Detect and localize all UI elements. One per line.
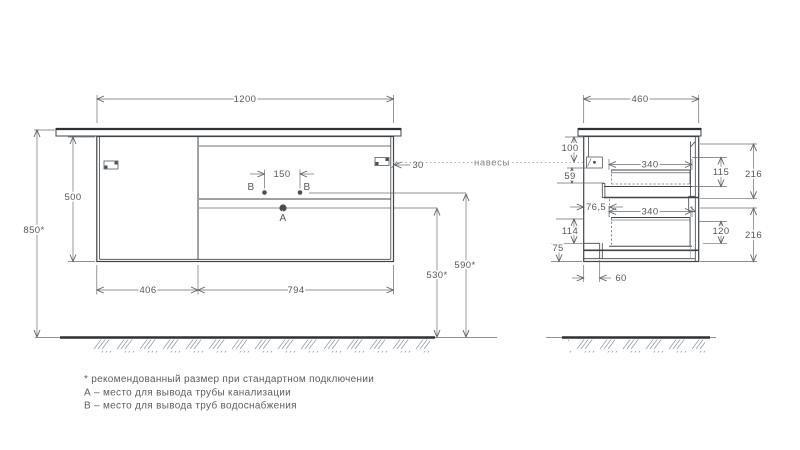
dim-bottom-widths: 406 794 xyxy=(97,265,394,296)
dim-850-label: 850* xyxy=(23,225,44,236)
dim-width: 1200 xyxy=(97,94,394,123)
dim-794-label: 794 xyxy=(287,285,304,296)
dim-100-label: 100 xyxy=(561,143,578,154)
water-supply-point-left xyxy=(262,190,267,195)
dim-lower-inner-height: 120 xyxy=(698,222,730,244)
drain-point xyxy=(279,204,286,211)
point-b-left-label: В xyxy=(247,182,254,193)
dim-upper-drawer-depth: 340 xyxy=(609,159,692,171)
side-drawer-bracket xyxy=(602,184,605,198)
dim-1200-label: 1200 xyxy=(234,94,257,105)
dim-outlet-heights: 590* 530* xyxy=(309,193,476,337)
side-lower-drawer xyxy=(584,218,699,251)
floor-hatching-side xyxy=(568,340,705,353)
footnote-point-a: А – место для вывода трубы канализации xyxy=(84,387,291,399)
dim-bottom-rail-height: 75 xyxy=(551,243,584,262)
dim-upper-front-height: 216 xyxy=(700,144,762,198)
dim-lower-drawer-depth: 340 xyxy=(609,206,692,218)
dim-60-label: 60 xyxy=(615,273,626,284)
dim-depth: 460 xyxy=(584,94,699,123)
dim-340-upper-label: 340 xyxy=(641,160,658,171)
dim-530-label: 530* xyxy=(426,270,447,281)
dim-216-upper-label: 216 xyxy=(745,169,762,180)
dim-500-label: 500 xyxy=(64,192,81,203)
dim-115-label: 115 xyxy=(713,167,729,178)
side-view: 460 100 59 340 340 76,5 xyxy=(551,94,762,284)
point-b-right-label: В xyxy=(303,182,310,193)
drawing-canvas: В В А 150 30 1200 500 xyxy=(0,0,800,450)
hanger-bracket-right-icon xyxy=(375,158,389,166)
side-hanger-icon xyxy=(587,157,603,168)
dim-59-label: 59 xyxy=(564,171,575,182)
dim-216-lower-label: 216 xyxy=(745,230,762,241)
dim-150-label: 150 xyxy=(273,169,290,180)
side-cabinet-outline xyxy=(584,137,699,262)
technical-drawing-vanity: В В А 150 30 1200 500 xyxy=(0,0,800,450)
front-view: В В А 150 30 1200 500 xyxy=(23,94,475,337)
water-supply-point-right xyxy=(298,190,303,195)
footnote-point-b: В – место для вывода труб водоснабжения xyxy=(84,400,297,412)
dim-top-to-hangers: 100 xyxy=(561,137,583,162)
dim-back-clearance: 76,5 xyxy=(570,199,623,217)
dim-120-label: 120 xyxy=(712,226,729,237)
dim-340-lower-label: 340 xyxy=(641,207,658,218)
dim-76-label: 76,5 xyxy=(586,202,606,213)
side-upper-drawer xyxy=(602,170,698,198)
dim-upper-inner-height: 115 xyxy=(692,158,729,187)
floor-hatching-front xyxy=(88,340,430,353)
dim-590-label: 590* xyxy=(454,260,475,271)
point-a-label: А xyxy=(279,213,286,224)
dim-460-label: 460 xyxy=(631,94,648,105)
dim-lower-front-height: 216 xyxy=(700,208,762,262)
footnotes: * рекомендованный размер при стандартном… xyxy=(84,374,374,412)
dim-height: 500 xyxy=(64,137,95,262)
dim-mounting-height: 850* xyxy=(23,130,55,337)
side-cabinet-inner-edges xyxy=(584,137,695,261)
dim-hangers-to-drawer: 59 xyxy=(557,168,604,183)
floor xyxy=(35,338,716,353)
dim-75-label: 75 xyxy=(552,243,563,254)
hangers-label: навесы xyxy=(474,158,510,169)
dim-lower-back-height: 114 xyxy=(556,219,584,243)
dim-30-label: 30 xyxy=(412,160,423,171)
dim-hanger-offset: 30 xyxy=(392,160,424,171)
dim-bottom-back-offset: 60 xyxy=(572,260,627,284)
dim-114-label: 114 xyxy=(562,226,578,237)
hanger-bracket-left-icon xyxy=(104,161,118,169)
front-cabinet-inner-edges xyxy=(100,137,391,259)
dim-406-label: 406 xyxy=(139,285,156,296)
footnote-recommended: * рекомендованный размер при стандартном… xyxy=(84,374,374,385)
